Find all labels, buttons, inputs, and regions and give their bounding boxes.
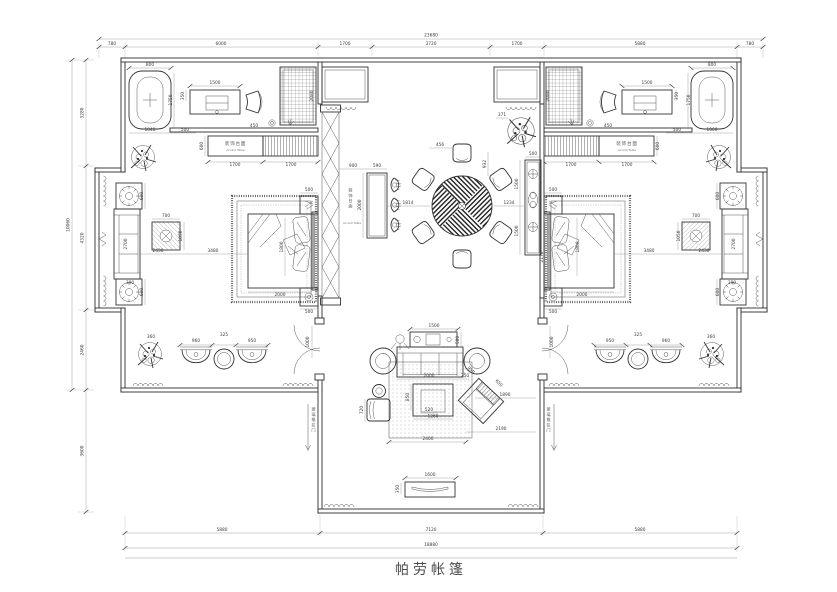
dim-label: 800 xyxy=(146,62,154,68)
dim-label: 1040 xyxy=(145,127,156,133)
rug xyxy=(232,196,316,302)
pillow xyxy=(292,244,310,272)
dim-label: 500 xyxy=(529,151,537,157)
dim-label: 1500 xyxy=(514,225,520,236)
accent-table-sublabel-right: Accent Table xyxy=(618,148,636,152)
basin xyxy=(236,347,268,363)
dim-label: 500 xyxy=(305,187,313,193)
sofa-console xyxy=(410,332,457,347)
dim-label: 1700 xyxy=(340,41,351,47)
dim-label: 2080 xyxy=(545,90,551,101)
curtain-icon xyxy=(324,505,354,508)
dim-label: 950 xyxy=(606,338,614,344)
dim-label: 7120 xyxy=(426,527,437,533)
door-swing-icon xyxy=(294,325,320,374)
dim-label: 800 xyxy=(708,62,716,68)
spring-icon xyxy=(99,232,106,246)
sink-icon xyxy=(269,120,275,126)
bar-stool xyxy=(391,198,401,212)
north-wall xyxy=(121,58,741,62)
end-table xyxy=(116,183,142,209)
dim-label: 960 xyxy=(192,338,200,344)
dim-label: 600 xyxy=(139,192,145,200)
dim-label: 500 xyxy=(455,336,461,344)
bathtub xyxy=(129,71,171,129)
dim-label: 2400 xyxy=(423,436,434,442)
dim-label: 2430 xyxy=(699,248,710,254)
sliding-door-note-right: 玻璃推拉门 xyxy=(546,406,552,434)
curtain-icon xyxy=(133,384,163,387)
dim-label: 3480 xyxy=(208,248,219,254)
dining-chair xyxy=(411,220,436,245)
dim-label: 2000 xyxy=(577,292,588,298)
stool xyxy=(246,91,261,113)
dim-label: 2430 xyxy=(153,248,164,254)
bar-stool xyxy=(391,178,401,192)
dining-chair xyxy=(488,167,513,192)
dim-label: 2000 xyxy=(424,373,435,379)
dim-label: 780 xyxy=(108,41,116,47)
dim-label: 2000 xyxy=(275,292,286,298)
lattice-screen xyxy=(321,105,341,305)
dim-label: 600 xyxy=(715,192,721,200)
dim-label: 600 xyxy=(715,288,721,296)
bar-stool xyxy=(391,218,401,232)
dim-label: 2700 xyxy=(123,238,129,249)
sliding-door-arrow-icon xyxy=(306,404,311,451)
dim-label: 1000 xyxy=(305,336,311,347)
entry-box xyxy=(322,67,368,110)
dim-label: 390 xyxy=(126,280,134,286)
pouf-chair xyxy=(370,348,396,374)
dim-label: 1500 xyxy=(210,80,221,86)
dim-label: 250 xyxy=(461,373,469,379)
dim-label: 650 xyxy=(494,378,504,388)
right-wing xyxy=(494,58,767,513)
dim-label: 5880 xyxy=(635,41,646,47)
sliding-door-note-left: 玻璃推拉门 xyxy=(311,406,317,434)
tv-console xyxy=(405,482,455,497)
dim-label: 350 xyxy=(180,92,186,100)
dim-label: 1890 xyxy=(500,392,511,398)
accent-table-label-left: 装饰台面 xyxy=(225,140,247,147)
left-wing xyxy=(95,58,368,513)
dim-label: 1260 xyxy=(428,414,439,420)
dim-label: 500 xyxy=(181,127,189,133)
accent-table-label-right: 装饰台面 xyxy=(616,140,638,147)
dim-label: 1700 xyxy=(622,162,633,168)
south-wall xyxy=(318,509,544,513)
dim-label: 500 xyxy=(549,187,557,193)
tv-icon xyxy=(412,487,448,492)
dim-label: 932 xyxy=(482,160,488,168)
dining-chair xyxy=(411,167,436,192)
dresser xyxy=(190,90,294,126)
dim-label: 371 xyxy=(498,112,506,118)
dim-label: 2080 xyxy=(309,90,315,101)
dim-label: 950 xyxy=(248,338,256,344)
dim-label: 1800 xyxy=(279,241,285,252)
floor-plan-canvas: 2368078060001700372017005880780100603280… xyxy=(0,0,837,592)
chaise-bench xyxy=(367,399,390,421)
dim-label: 590 xyxy=(373,163,381,169)
dim-label: 18880 xyxy=(424,542,438,548)
dim-label: 1500 xyxy=(429,323,440,329)
dim-label: 1814 xyxy=(403,200,414,206)
dim-label: 1700 xyxy=(512,41,523,47)
dim-label: 2460 xyxy=(80,344,86,355)
round-side-table xyxy=(373,385,386,398)
dim-label: 780 xyxy=(746,41,754,47)
dim-label: 1750 xyxy=(168,94,174,105)
dim-label: 6000 xyxy=(216,41,227,47)
dim-label: 360 xyxy=(147,334,155,340)
basin xyxy=(180,347,212,363)
dim-label: 600 xyxy=(199,142,205,150)
curtain-icon xyxy=(283,384,313,387)
dim-label: 350 xyxy=(674,92,680,100)
plant-icon xyxy=(131,145,156,171)
curtain-icon xyxy=(104,276,107,306)
dim-label: 500 xyxy=(673,127,681,133)
plant-icon xyxy=(507,117,536,147)
bar-table-label: 装饰台面 xyxy=(348,187,354,210)
dim-label: 960 xyxy=(662,338,670,344)
dim-label: 5880 xyxy=(217,527,228,533)
dim-label: 3480 xyxy=(644,248,655,254)
dim-label: 456 xyxy=(436,142,444,148)
dim-label: 1000 xyxy=(549,336,555,347)
dining-chair xyxy=(453,144,471,162)
plant-icon xyxy=(138,342,163,368)
dim-label: 500 xyxy=(549,309,557,315)
accent-table-sublabel-left: Accent Table xyxy=(226,148,244,152)
dining-chair xyxy=(488,220,513,245)
dim-label: 520 xyxy=(425,407,433,413)
dim-label: 3600 xyxy=(80,445,86,456)
dim-label: 1750 xyxy=(686,94,692,105)
dim-label: 325 xyxy=(220,332,228,338)
dim-label: 450 xyxy=(604,123,612,129)
console-table xyxy=(525,104,544,298)
dim-label: 850 xyxy=(405,393,411,401)
dim-label: 900 xyxy=(349,163,357,169)
main-walls xyxy=(121,58,741,513)
dim-label: 390 xyxy=(728,280,736,286)
dim-label: 3720 xyxy=(426,41,437,47)
drawing-title: 帕劳帐篷 xyxy=(395,562,467,578)
dim-label: 2190 xyxy=(496,426,507,432)
curtain-icon xyxy=(326,107,356,110)
bar-counter xyxy=(367,173,401,238)
bar-table-sublabel: Accent Table xyxy=(343,221,361,225)
dim-label: 2000 xyxy=(357,199,363,210)
dim-label: 1050 xyxy=(676,230,682,241)
dim-label: 1500 xyxy=(514,178,520,189)
dim-label: 1000 xyxy=(707,127,718,133)
dim-label: 4320 xyxy=(80,232,86,243)
dim-label: 5880 xyxy=(635,527,646,533)
dim-label: 2700 xyxy=(731,238,737,249)
curtain-icon xyxy=(104,176,107,206)
floor-lamp-icon xyxy=(396,335,404,343)
dim-label: 10060 xyxy=(66,218,72,232)
dim-label: 720 xyxy=(359,406,365,414)
dim-label: 1700 xyxy=(566,162,577,168)
dim-label: 350 xyxy=(395,485,401,493)
side-table xyxy=(152,222,180,250)
bed-area xyxy=(232,196,318,306)
dim-label: 1700 xyxy=(286,162,297,168)
dim-label: 1234 xyxy=(504,200,515,206)
dim-label: 450 xyxy=(250,123,258,129)
dim-label: 23680 xyxy=(424,33,438,39)
pillow xyxy=(292,216,310,244)
dim-label: 1600 xyxy=(425,472,436,478)
dim-label: 700 xyxy=(692,213,700,219)
dining-chair xyxy=(453,250,471,268)
dim-label: 360 xyxy=(707,334,715,340)
dim-label: 1050 xyxy=(178,230,184,241)
dim-label: 1700 xyxy=(230,162,241,168)
dim-label: 325 xyxy=(634,332,642,338)
dim-label: 1800 xyxy=(575,241,581,252)
dim-label: 500 xyxy=(305,309,313,315)
dim-label: 1500 xyxy=(642,80,653,86)
dim-label: 2170 xyxy=(539,251,545,262)
dim-label: 600 xyxy=(139,288,145,296)
dim-label: 3280 xyxy=(80,107,86,118)
dim-label: 600 xyxy=(655,142,661,150)
dim-label: 700 xyxy=(162,213,170,219)
bay-sofa xyxy=(99,176,142,306)
